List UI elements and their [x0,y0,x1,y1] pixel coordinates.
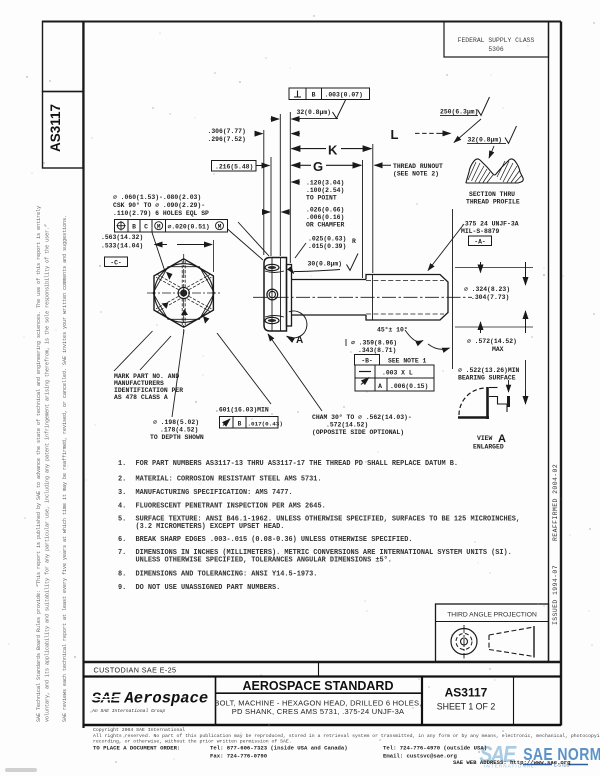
svg-text:.304(7.73): .304(7.73) [471,294,509,301]
svg-text:.343(8.71): .343(8.71) [358,347,396,354]
svg-text:G: G [313,159,323,174]
svg-text:THREAD PROFILE: THREAD PROFILE [466,199,520,206]
svg-text:M: M [218,223,222,230]
svg-text:30(0.8μm): 30(0.8μm) [308,261,343,268]
svg-text:4.: 4. [118,503,126,511]
svg-text:.003(0.07): .003(0.07) [325,92,363,99]
svg-text:SAE Technical Standards Board: SAE Technical Standards Board Rules prov… [36,206,42,722]
svg-text:.026(0.66): .026(0.66) [306,207,344,214]
svg-text:ISSUED 1994-07: ISSUED 1994-07 [552,565,559,625]
svg-text:M: M [157,223,161,230]
svg-text:6.: 6. [118,536,126,544]
svg-text:DO NOT USE UNASSIGNED PART NUM: DO NOT USE UNASSIGNED PART NUMBERS. [136,584,281,592]
svg-text:TO POINT: TO POINT [306,195,337,202]
svg-text:AS3117: AS3117 [445,686,488,700]
svg-text:32(0.8μm): 32(0.8μm) [468,137,503,144]
svg-text:2.: 2. [118,476,126,484]
svg-text:DIMENSIONS AND TOLERANCING: AN: DIMENSIONS AND TOLERANCING: ANSI Y14.5-1… [136,571,318,579]
svg-text:AEROSPACE STANDARD: AEROSPACE STANDARD [243,679,394,693]
svg-text:SAE WEB ADDRESS: http://www.sa: SAE WEB ADDRESS: http://www.sae.org [453,759,571,766]
svg-text:UNLESS OTHERWISE SPECIFIED, TO: UNLESS OTHERWISE SPECIFIED, TOLERANCES A… [136,556,392,565]
svg-text:CHAM 30° TO ⌀ .562(14.03)-: CHAM 30° TO ⌀ .562(14.03)- [312,413,412,421]
svg-text:Tel: 724-776-4970 (outside USA: Tel: 724-776-4970 (outside USA) [383,745,487,752]
svg-text:R: R [352,238,356,245]
svg-text:AS 478 CLASS A: AS 478 CLASS A [114,394,168,401]
svg-text:.306(7.77): .306(7.77) [208,128,246,135]
svg-text:BEARING SURFACE: BEARING SURFACE [458,375,516,382]
svg-text:An SAE International Group: An SAE International Group [91,708,165,714]
svg-text:AS3117: AS3117 [48,104,63,152]
svg-text:.100(2.54): .100(2.54) [306,187,344,194]
svg-text:MANUFACTURERS: MANUFACTURERS [114,380,164,387]
svg-text:TO DEPTH SHOWN: TO DEPTH SHOWN [150,434,204,441]
svg-text:⌀ .522(13.26)MIN: ⌀ .522(13.26)MIN [458,367,520,374]
svg-text:32(0.8μm): 32(0.8μm) [297,109,332,116]
svg-text:5.: 5. [118,516,126,524]
svg-text:.110(2.79) 6 HOLES EQL SP: .110(2.79) 6 HOLES EQL SP [113,210,209,217]
svg-text:A: A [296,335,303,346]
svg-text:L: L [391,127,399,142]
svg-text:7.: 7. [118,549,126,557]
svg-text:Fax: 724-776-0790: Fax: 724-776-0790 [210,753,268,760]
svg-text:SEE NOTE 1: SEE NOTE 1 [388,358,427,365]
svg-text:FEDERAL SUPPLY CLASS: FEDERAL SUPPLY CLASS [458,37,535,44]
svg-text:SECTION THRU: SECTION THRU [469,191,515,198]
svg-text:THIRD ANGLE PROJECTION: THIRD ANGLE PROJECTION [447,612,537,619]
svg-text:C: C [144,224,148,231]
svg-text:.015(0.39): .015(0.39) [308,243,346,250]
svg-text:IDENTIFICATION PER: IDENTIFICATION PER [114,387,183,394]
svg-text:.025(0.63): .025(0.63) [308,236,346,243]
svg-text:.003 X L: .003 X L [382,370,413,377]
svg-text:TO PLACE A DOCUMENT ORDER:: TO PLACE A DOCUMENT ORDER: [93,745,180,752]
svg-text:3.: 3. [118,489,126,497]
svg-text:.178(4.52): .178(4.52) [160,427,198,434]
svg-text:K: K [328,143,338,158]
svg-text:.296(7.52): .296(7.52) [208,136,246,143]
svg-text:⌀ .359(8.96): ⌀ .359(8.96) [351,340,397,347]
svg-text:MAX: MAX [492,346,504,353]
svg-text:OR CHAMFER: OR CHAMFER [306,222,345,229]
svg-text:VIEW: VIEW [477,435,493,442]
svg-text:5306: 5306 [488,46,504,53]
svg-text:-B-: -B- [361,358,373,365]
svg-text:⌀ .060(1.53)-.080(2.03): ⌀ .060(1.53)-.080(2.03) [113,194,201,201]
svg-text:Aerospace: Aerospace [124,690,209,708]
svg-text:(OPPOSITE SIDE OPTIONAL): (OPPOSITE SIDE OPTIONAL) [312,429,404,436]
svg-text:Email: custsvc@sae.org: Email: custsvc@sae.org [383,753,457,760]
svg-text:Tel: 877-606-7323 (inside USA: Tel: 877-606-7323 (inside USA and Canada… [210,745,348,752]
svg-text:REAFFIRMED 2004-02: REAFFIRMED 2004-02 [552,464,559,541]
svg-text:(3.2 MICROMETERS) EXCEPT UPSET: (3.2 MICROMETERS) EXCEPT UPSET HEAD. [136,523,285,531]
svg-text:⌀ .572(14.52): ⌀ .572(14.52) [467,338,517,345]
svg-text:8.: 8. [118,571,126,579]
svg-text:.563(14.32): .563(14.32) [101,234,143,241]
svg-text:MARK PART NO. AND: MARK PART NO. AND [114,373,179,380]
svg-text:THREAD RUNOUT: THREAD RUNOUT [393,163,443,170]
svg-text:45°± 10°: 45°± 10° [377,326,408,334]
svg-text:B: B [312,92,316,99]
svg-text:B: B [238,421,242,428]
svg-text:MIL-S-8879: MIL-S-8879 [461,228,500,235]
svg-text:BREAK SHARP EDGES .003-.015 (0: BREAK SHARP EDGES .003-.015 (0.08-0.36) … [136,536,413,544]
svg-text:voluntary, and its applicabili: voluntary, and its applicability and sui… [45,224,51,722]
svg-text:1.: 1. [118,460,126,468]
svg-text:ENLARGED: ENLARGED [473,444,504,451]
svg-text:250(6.3μm): 250(6.3μm) [440,109,478,116]
svg-text:9.: 9. [118,584,126,592]
svg-text:(SEE NOTE 2): (SEE NOTE 2) [393,171,439,178]
svg-text:-A-: -A- [474,238,486,245]
svg-text:.601(16.03)MIN: .601(16.03)MIN [215,407,269,414]
svg-text:MANUFACTURING SPECIFICATION:: MANUFACTURING SPECIFICATION: AMS 7477. [136,489,293,497]
svg-text:-C-: -C- [110,259,122,266]
svg-text:.006(0.15): .006(0.15) [390,383,428,390]
svg-text:CSK 90° TO ⌀ .090(2.29)-: CSK 90° TO ⌀ .090(2.29)- [113,201,205,209]
svg-text:⌀ .198(5.02): ⌀ .198(5.02) [153,419,199,426]
svg-text:⌀ .324(8.23): ⌀ .324(8.23) [464,286,510,293]
svg-text:.533(14.04): .533(14.04) [101,243,143,250]
svg-text:.017(0.43): .017(0.43) [248,420,283,427]
svg-text:B: B [132,224,136,231]
svg-text:⌀.020(0.51): ⌀.020(0.51) [168,224,210,231]
svg-text:SAE reviews each technical rep: SAE reviews each technical report at lea… [62,215,68,722]
svg-text:CUSTODIAN SAE E-25: CUSTODIAN SAE E-25 [94,666,177,675]
svg-text:PD SHANK, CRES AMS 5731, .375-: PD SHANK, CRES AMS 5731, .375-24 UNJF-3A [232,707,405,716]
svg-text:SHEET 1 OF 2: SHEET 1 OF 2 [437,702,496,712]
svg-text:A: A [378,383,382,390]
svg-text:FOR PART NUMBERS AS3117-13 THR: FOR PART NUMBERS AS3117-13 THRU AS3117-1… [136,460,459,468]
svg-text:MATERIAL: CORROSION RESISTANT: MATERIAL: CORROSION RESISTANT STEEL AMS … [136,476,322,484]
svg-text:.375 24 UNJF-3A: .375 24 UNJF-3A [461,221,519,228]
svg-text:All rights reserved. No part o: All rights reserved. No part of this pub… [93,733,600,739]
svg-text:.006(0.16): .006(0.16) [306,214,344,221]
svg-text:SAE: SAE [92,691,122,707]
svg-text:.216(5.48): .216(5.48) [215,164,253,171]
svg-text:.572(14.52): .572(14.52) [326,422,368,429]
svg-text:.120(3.04): .120(3.04) [306,180,344,187]
svg-text:FLUORESCENT PENETRANT INSPECTI: FLUORESCENT PENETRANT INSPECTION PER AMS… [136,503,326,511]
svg-text:Copyright 2004 SAE Internatio: Copyright 2004 SAE International [93,727,185,733]
